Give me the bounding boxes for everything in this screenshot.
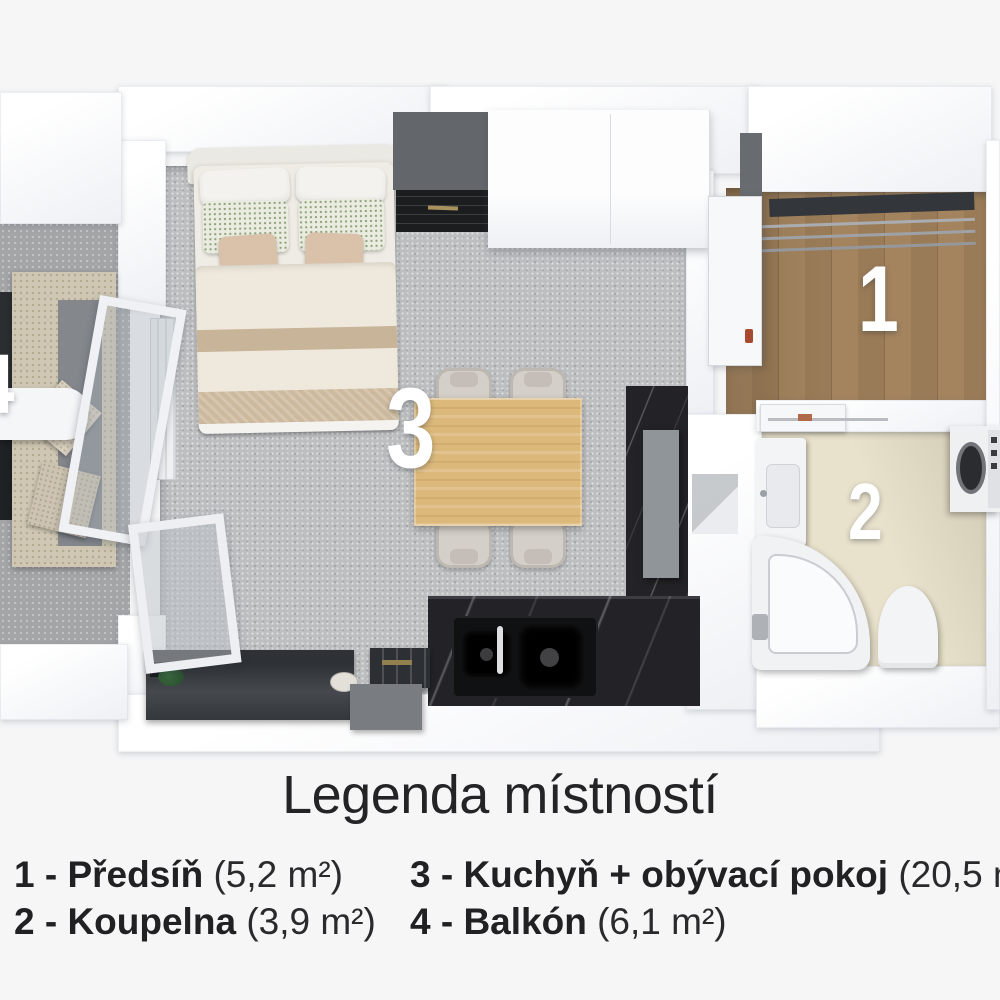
vanity-tap [760, 490, 767, 497]
legend-item-label: 1 - Předsíň [14, 854, 203, 895]
door-frame-top [740, 133, 762, 197]
room-label-bathroom: 2 [848, 472, 883, 552]
storage-box [350, 684, 422, 730]
legend-item-area: (6,1 m²) [597, 901, 727, 942]
rail [735, 218, 975, 229]
desk-top [396, 190, 490, 232]
wall [986, 140, 1000, 710]
wardrobe [488, 110, 710, 248]
wall [118, 140, 166, 308]
vanity-basin [766, 464, 800, 528]
towel-rail [768, 418, 888, 421]
wardrobe-door-seam [610, 114, 611, 244]
entry-door [708, 196, 762, 366]
sink-drain [540, 648, 559, 667]
washing-machine [950, 426, 1000, 512]
dining-table [414, 398, 582, 526]
double-bed [187, 144, 405, 440]
bed-blanket-band [197, 326, 397, 352]
room-label-hallway: 1 [858, 252, 899, 346]
desk [393, 112, 490, 190]
kitchen-sink [452, 616, 598, 698]
wall [756, 666, 1000, 728]
legend-item-area: (20,5 m²) [898, 854, 1000, 895]
legend-item: 4 - Balkón (6,1 m²) [410, 901, 727, 943]
legend-item: 1 - Předsíň (5,2 m²) [14, 854, 343, 896]
washing-machine-door [956, 442, 986, 494]
rail [741, 230, 975, 241]
legend-item-label: 4 - Balkón [410, 901, 587, 942]
legend-item-label: 2 - Koupelna [14, 901, 236, 942]
towel [798, 414, 812, 421]
balcony-glass-door [128, 513, 242, 674]
sliding-wardrobe-rails [734, 192, 976, 258]
cutlery [382, 660, 412, 665]
bathtub-faucet [752, 614, 768, 640]
room-label-balcony: 4 [0, 342, 14, 426]
wall [748, 86, 992, 192]
wall-towel [692, 474, 738, 534]
legend-item: 3 - Kuchyň + obývací pokoj (20,5 m²) [410, 854, 1000, 896]
legend-item-area: (3,9 m²) [246, 901, 376, 942]
legend-item: 2 - Koupelna (3,9 m²) [14, 901, 376, 943]
door-handle [745, 329, 753, 343]
room-label-living-kitchen: 3 [386, 372, 435, 486]
legend-item-area: (5,2 m²) [213, 854, 343, 895]
legend-item-label: 3 - Kuchyň + obývací pokoj [410, 854, 888, 895]
floorplan-image: 1 2 3 4 Legenda místností 1 - Předsíň (5… [0, 0, 1000, 1000]
washing-machine-controls [988, 430, 1000, 508]
legend-title: Legenda místností [0, 764, 1000, 826]
sink-drain [480, 648, 493, 661]
bathroom-vanity-sink [756, 438, 806, 546]
kitchen-wall-cabinet [643, 430, 679, 578]
sink-faucet [497, 626, 503, 674]
wall [0, 644, 128, 720]
wall [0, 92, 122, 224]
drawer-organizer [370, 648, 430, 688]
